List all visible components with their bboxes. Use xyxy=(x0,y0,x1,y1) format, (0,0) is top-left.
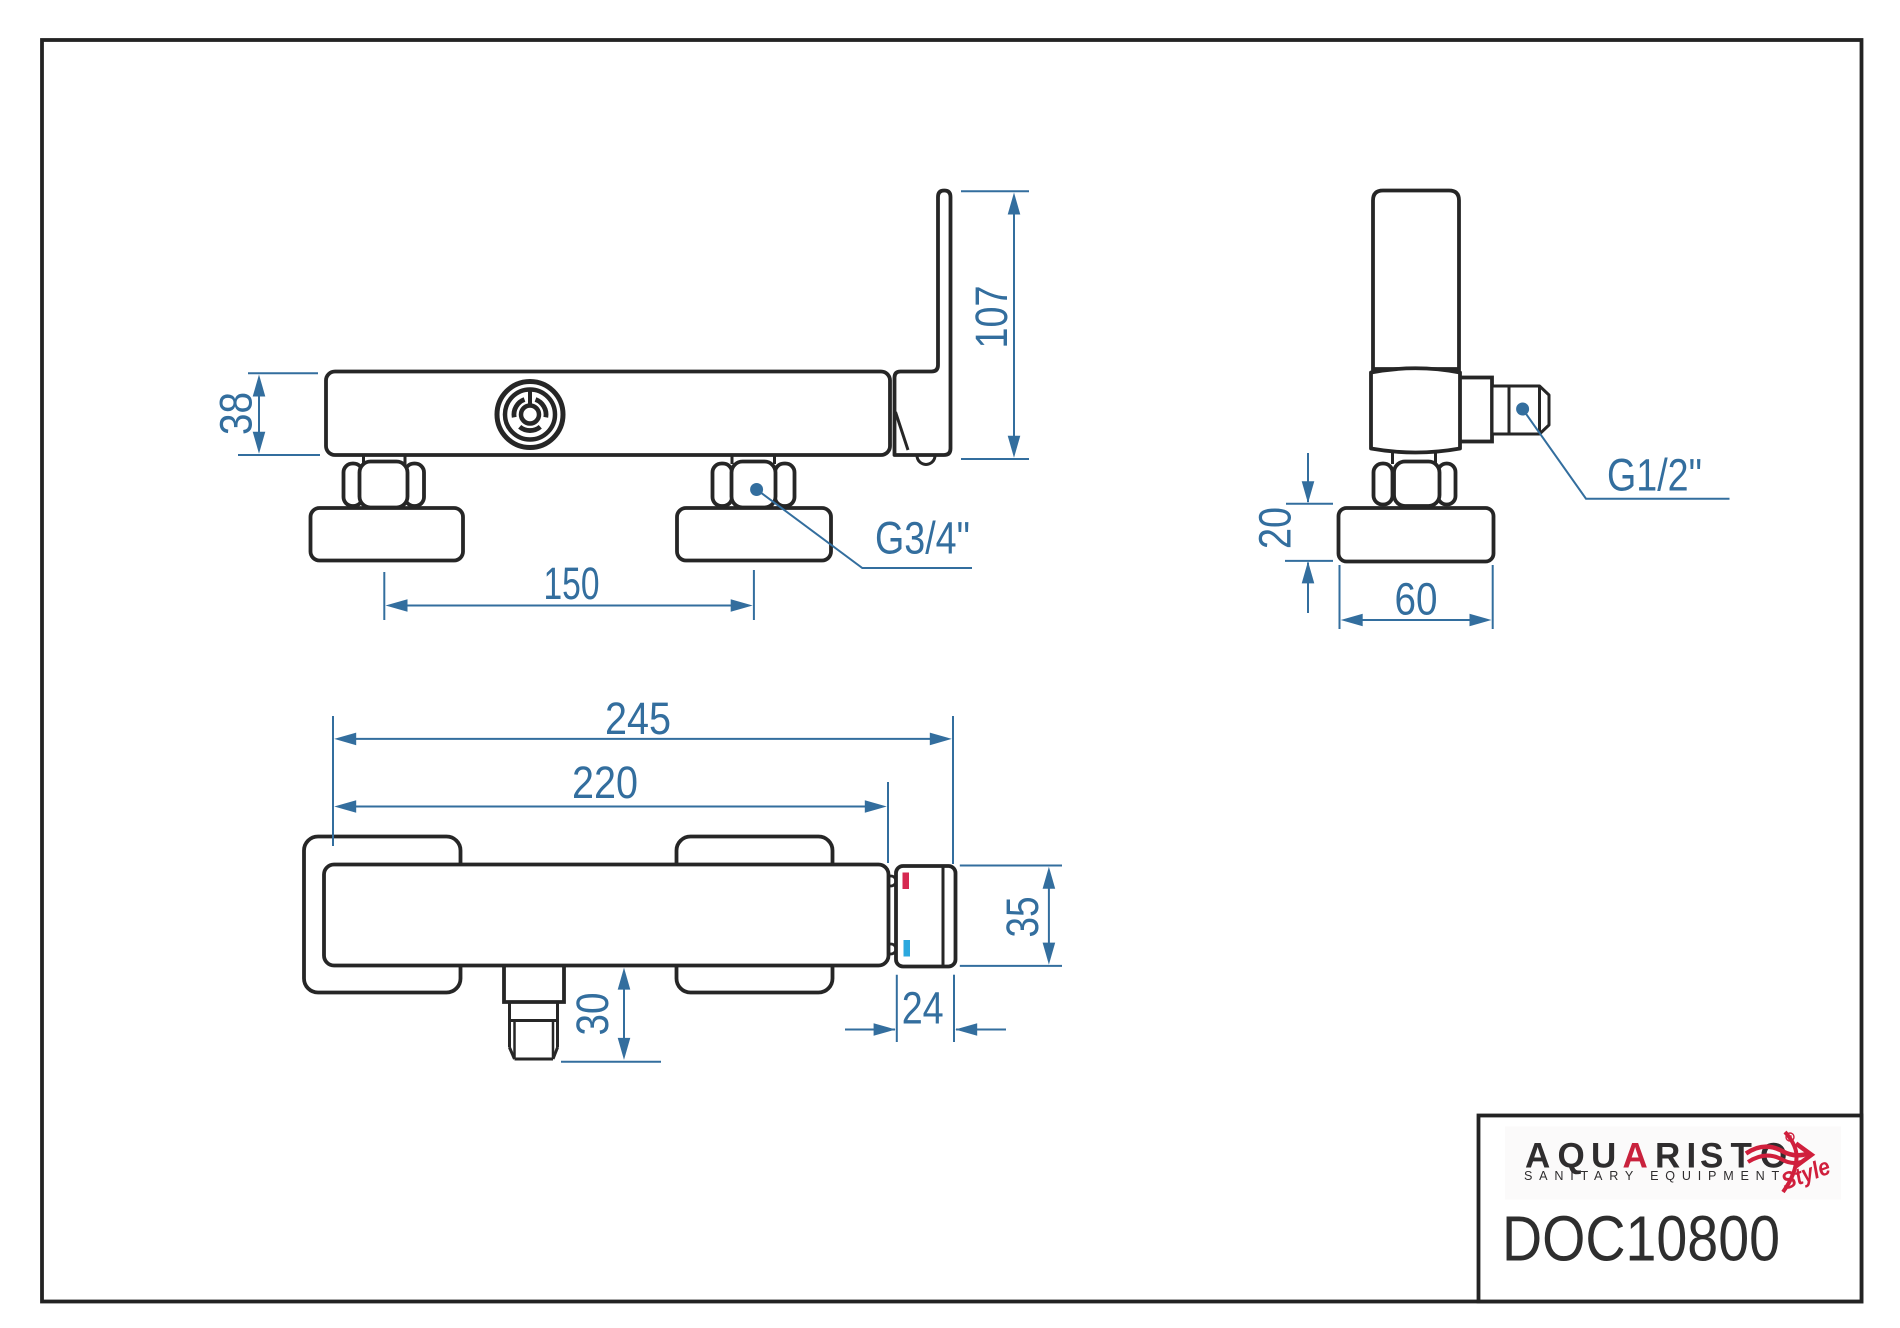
svg-text:60: 60 xyxy=(1395,574,1438,625)
svg-text:150: 150 xyxy=(544,558,600,609)
svg-text:SANITARY EQUIPMENT: SANITARY EQUIPMENT xyxy=(1524,1168,1786,1183)
svg-text:20: 20 xyxy=(1250,507,1301,549)
svg-text:107: 107 xyxy=(966,286,1017,349)
svg-text:220: 220 xyxy=(572,757,638,808)
svg-text:35: 35 xyxy=(997,897,1048,938)
svg-text:30: 30 xyxy=(567,993,618,1036)
svg-text:24: 24 xyxy=(902,983,944,1034)
svg-text:38: 38 xyxy=(211,392,262,435)
svg-text:245: 245 xyxy=(605,693,671,744)
svg-text:DOC10800: DOC10800 xyxy=(1502,1203,1780,1275)
svg-text:G3/4": G3/4" xyxy=(875,513,970,564)
svg-text:G1/2": G1/2" xyxy=(1607,450,1702,501)
svg-text:R: R xyxy=(1788,1135,1793,1142)
